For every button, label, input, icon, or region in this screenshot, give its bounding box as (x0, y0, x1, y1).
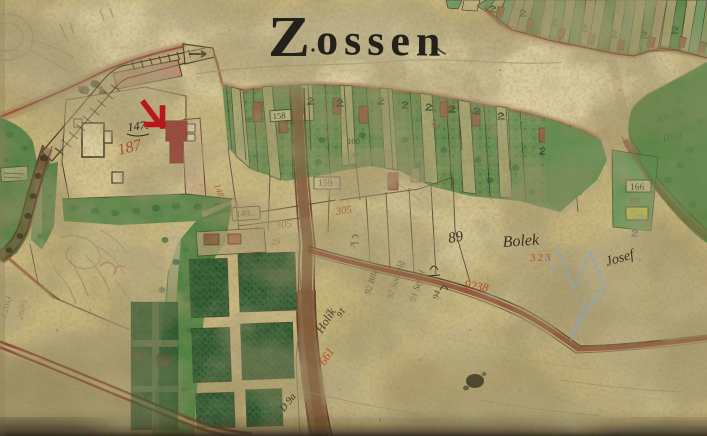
svg-text:ossen: ossen (316, 15, 447, 66)
svg-text:Bolek: Bolek (502, 231, 540, 251)
svg-text:Z: Z (268, 4, 310, 69)
